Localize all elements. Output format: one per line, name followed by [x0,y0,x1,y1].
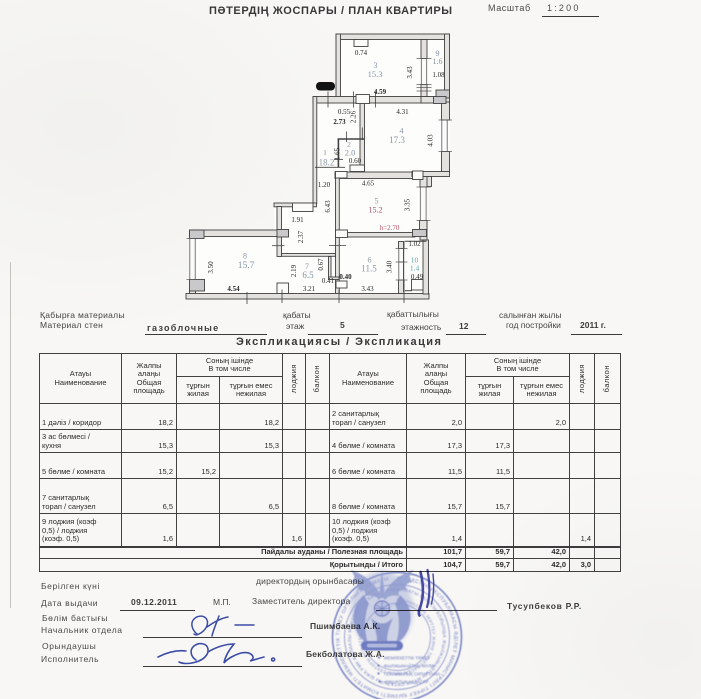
svg-text:ҚҰҚЫҚТЫҚ КАДАСТР: ҚҰҚЫҚТЫҚ КАДАСТР [385,680,429,685]
svg-text:МЕМЛЕКЕТТІК ТІРКЕУ: МЕМЛЕКЕТТІК ТІРКЕУ [384,656,430,661]
svg-text:ТЕХНИКАЛЫҚ СИПАТТАМА: ТЕХНИКАЛЫҚ СИПАТТАМА [384,672,441,677]
svg-text:ЖЫЛЖЫМАЙТЫН МҮЛІК: ЖЫЛЖЫМАЙТЫН МҮЛІК [384,664,436,669]
